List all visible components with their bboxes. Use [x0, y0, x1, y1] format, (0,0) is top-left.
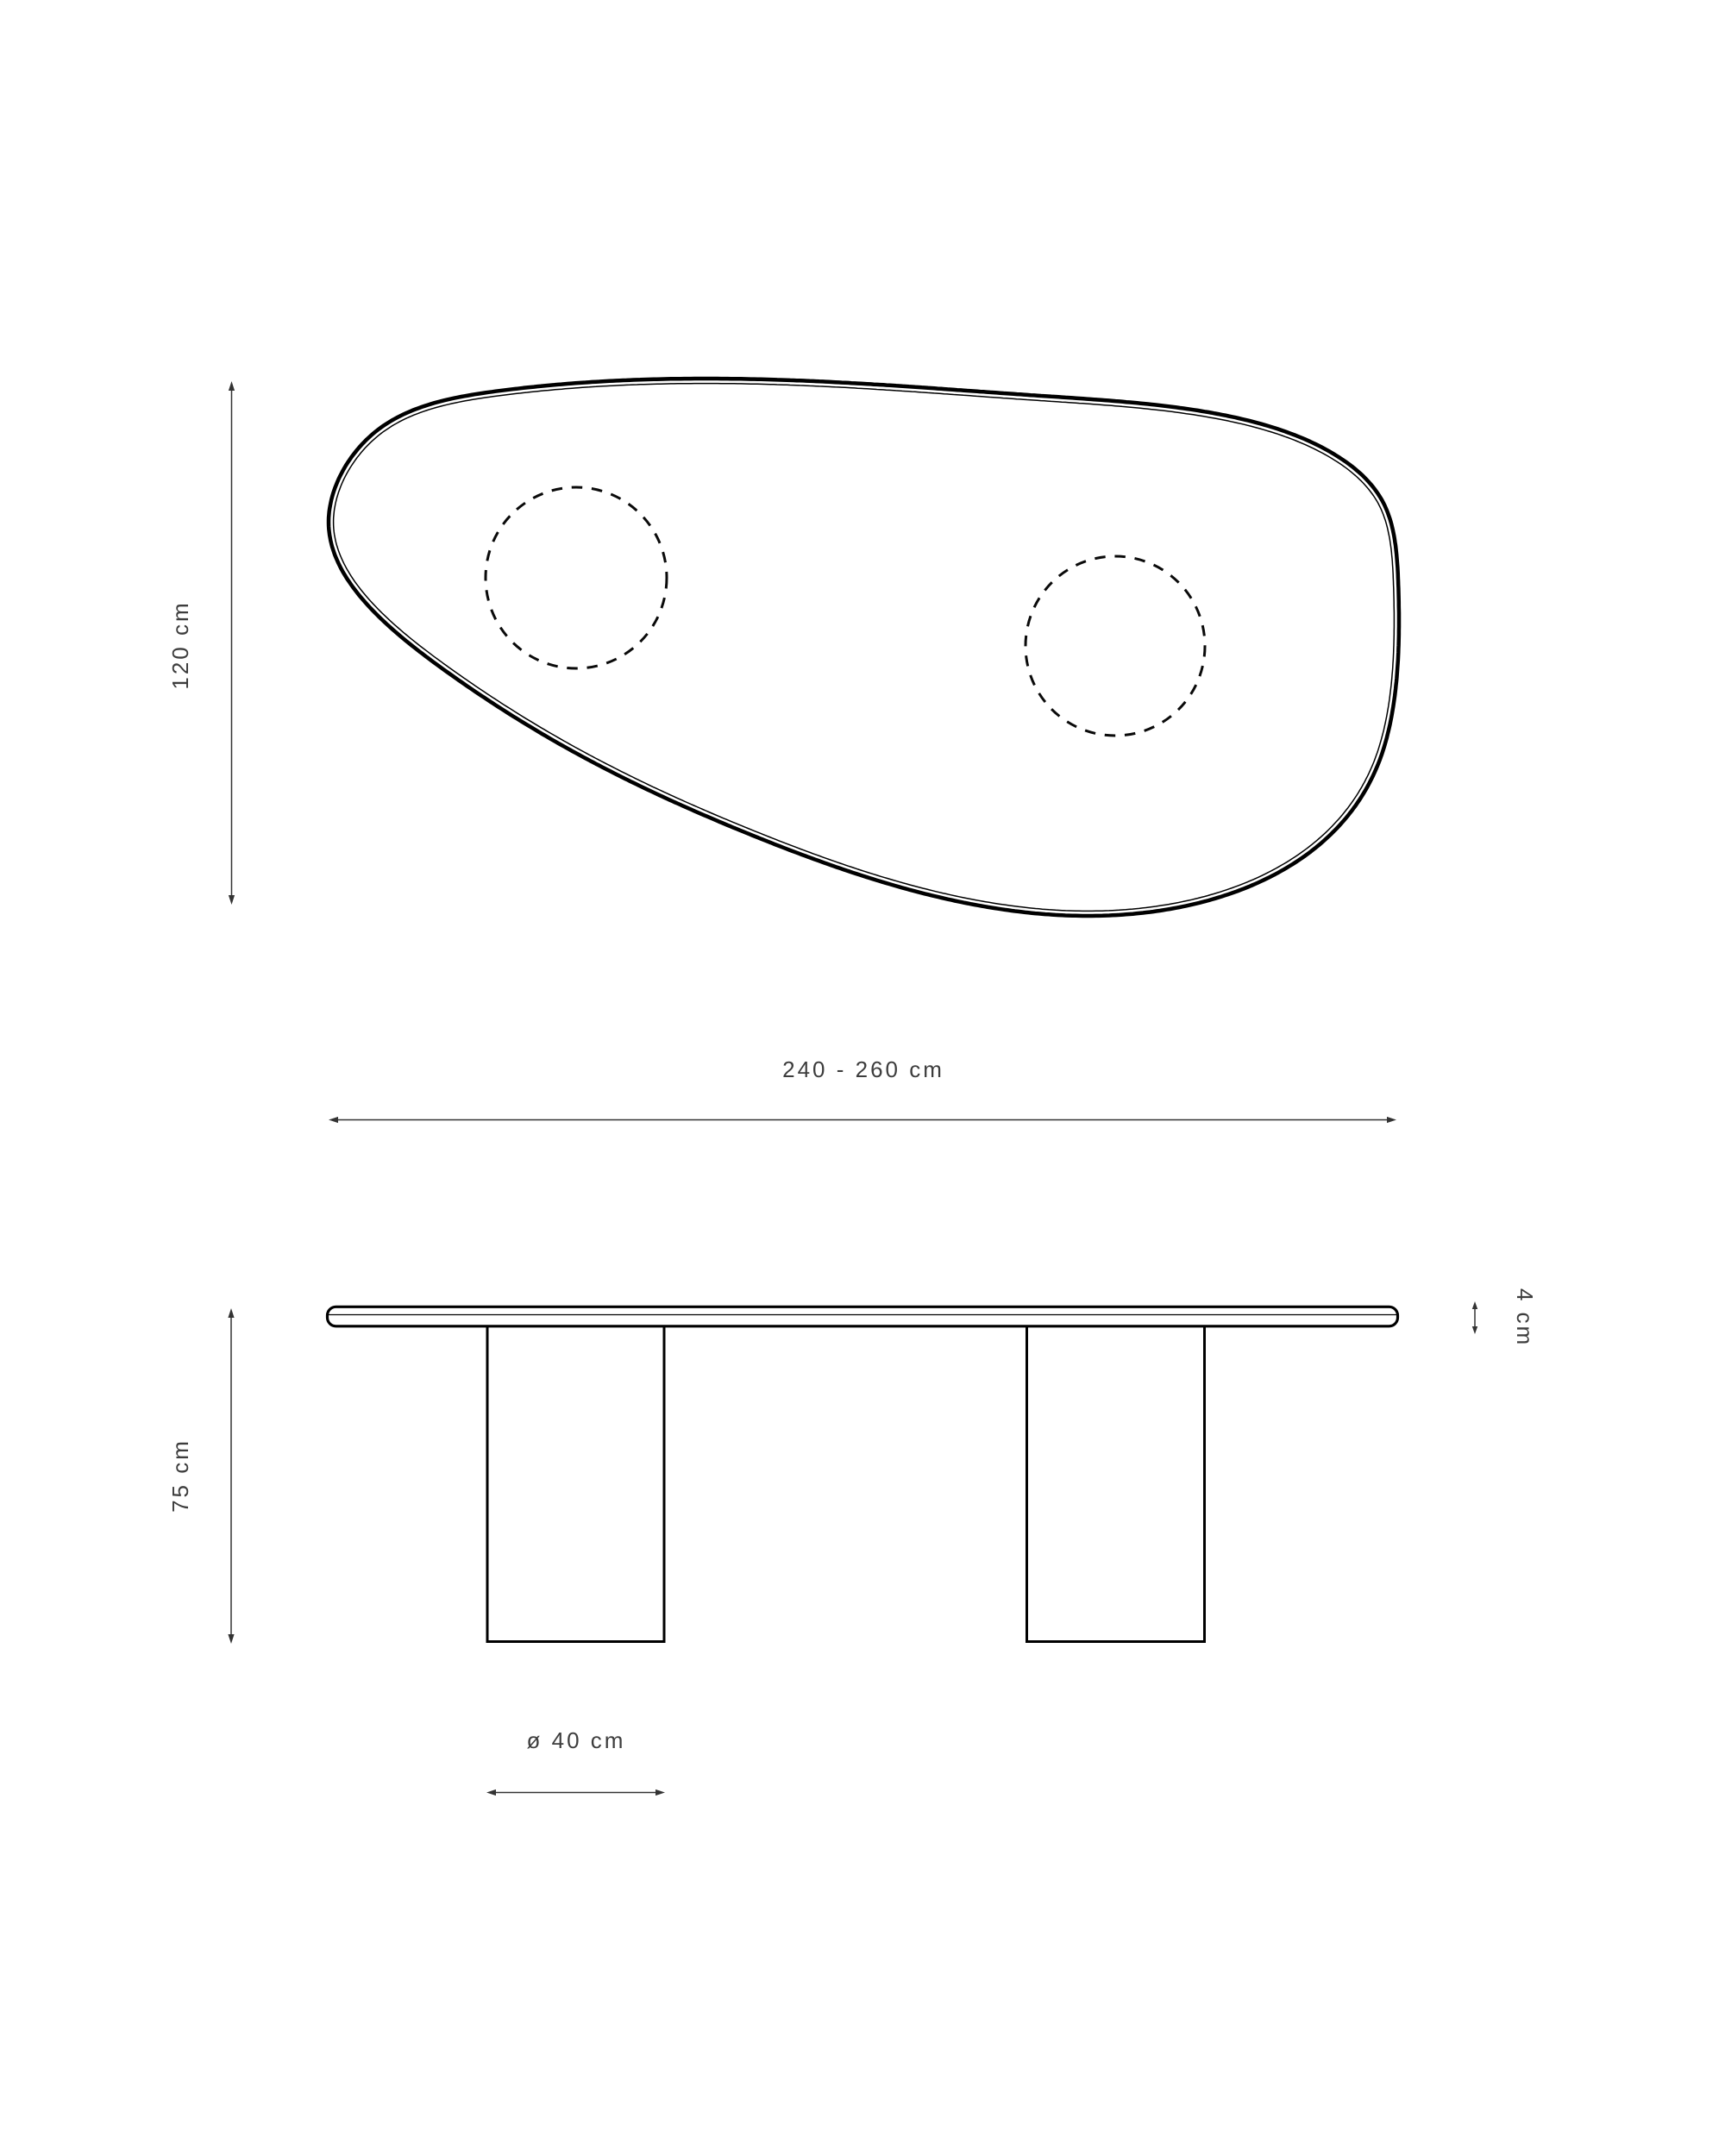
svg-text:120 cm: 120 cm [167, 600, 193, 689]
svg-text:75 cm: 75 cm [167, 1438, 193, 1513]
svg-text:ø 40 cm: ø 40 cm [527, 1727, 626, 1753]
svg-text:240 - 260 cm: 240 - 260 cm [782, 1056, 944, 1082]
svg-text:4 cm: 4 cm [1512, 1288, 1538, 1347]
